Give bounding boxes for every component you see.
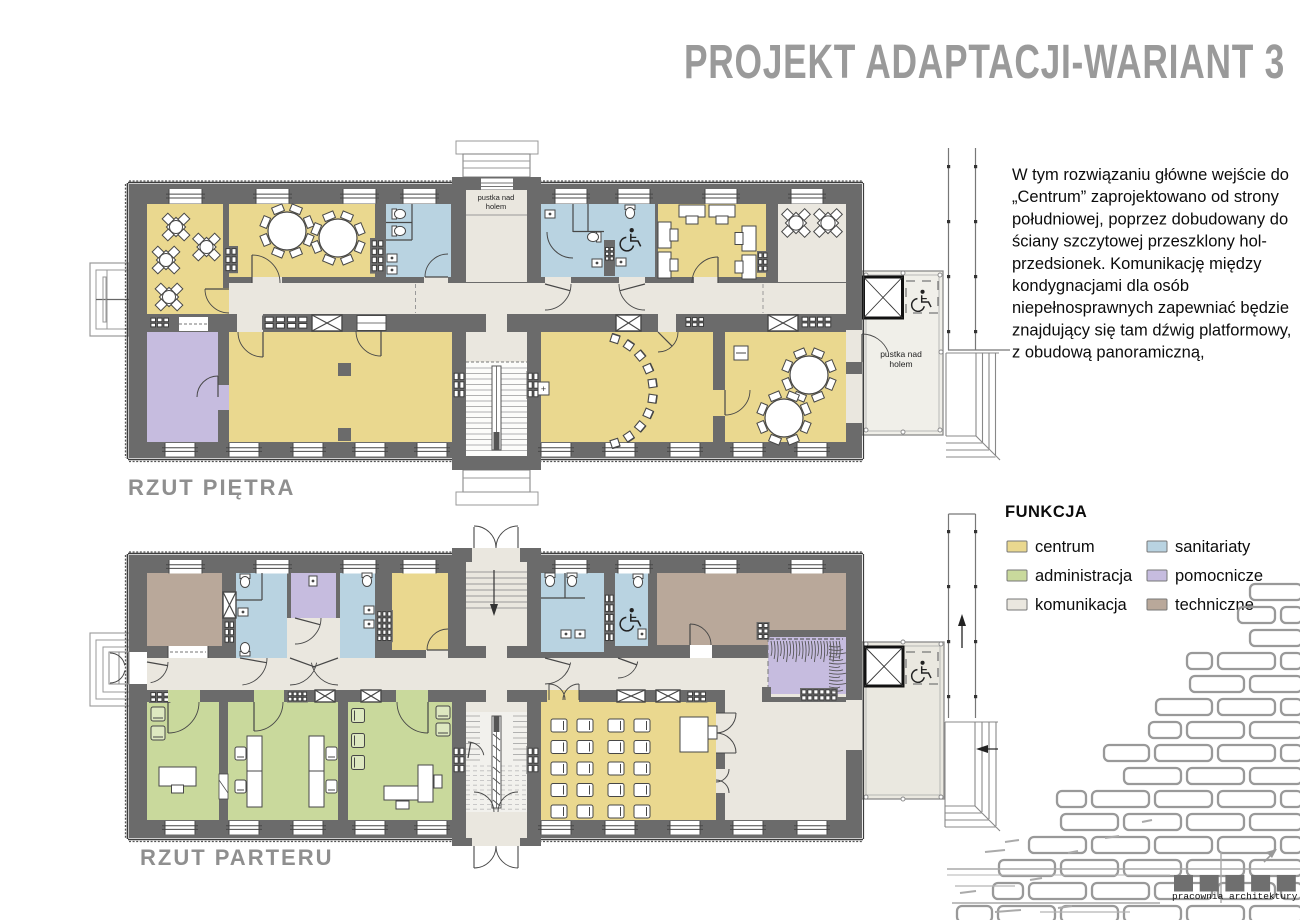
svg-text:techniczne: techniczne bbox=[1175, 596, 1254, 614]
svg-text:pracownia architektury art.tu: pracownia architektury art.tu bbox=[1172, 891, 1300, 902]
svg-text:sanitariaty: sanitariaty bbox=[1175, 538, 1251, 556]
svg-text:W tym rozwiązaniu główne wejśc: W tym rozwiązaniu główne wejście do bbox=[1012, 166, 1289, 184]
svg-text:komunikacja: komunikacja bbox=[1035, 596, 1128, 614]
svg-text:z obudową panoramiczną,: z obudową panoramiczną, bbox=[1012, 344, 1205, 362]
svg-text:pomocnicze: pomocnicze bbox=[1175, 567, 1263, 585]
svg-text:RZUT PIĘTRA: RZUT PIĘTRA bbox=[128, 475, 295, 500]
svg-text:PROJEKT ADAPTACJI-WARIANT 3: PROJEKT ADAPTACJI-WARIANT 3 bbox=[684, 36, 1285, 89]
svg-text:RZUT PARTERU: RZUT PARTERU bbox=[140, 845, 333, 870]
svg-text:kondygnacjami dla osób: kondygnacjami dla osób bbox=[1012, 277, 1189, 295]
svg-text:pustka nad: pustka nad bbox=[880, 349, 922, 359]
svg-text:ściany szczytowej przeszklony: ściany szczytowej przeszklony hol- bbox=[1012, 233, 1267, 251]
svg-text:administracja: administracja bbox=[1035, 567, 1133, 585]
svg-text:centrum: centrum bbox=[1035, 538, 1095, 556]
svg-text:holem: holem bbox=[889, 359, 912, 369]
svg-text:przedsionek. Komunikację międz: przedsionek. Komunikację między bbox=[1012, 255, 1262, 273]
svg-text:znajdujący się tam dźwig platf: znajdujący się tam dźwig platformowy, bbox=[1012, 321, 1291, 339]
svg-text:FUNKCJA: FUNKCJA bbox=[1005, 503, 1087, 521]
svg-text:holem: holem bbox=[486, 202, 506, 211]
svg-text:„Centrum” zaprojektowano od st: „Centrum” zaprojektowano od strony bbox=[1012, 188, 1280, 206]
svg-text:pustka nad: pustka nad bbox=[478, 193, 515, 202]
svg-text:południowej, poprzez dobudowan: południowej, poprzez dobudowany do bbox=[1012, 210, 1288, 228]
svg-text:+: + bbox=[541, 384, 546, 394]
svg-text:niepełnosprawnych zapewniać bę: niepełnosprawnych zapewniać będzie bbox=[1012, 299, 1289, 317]
